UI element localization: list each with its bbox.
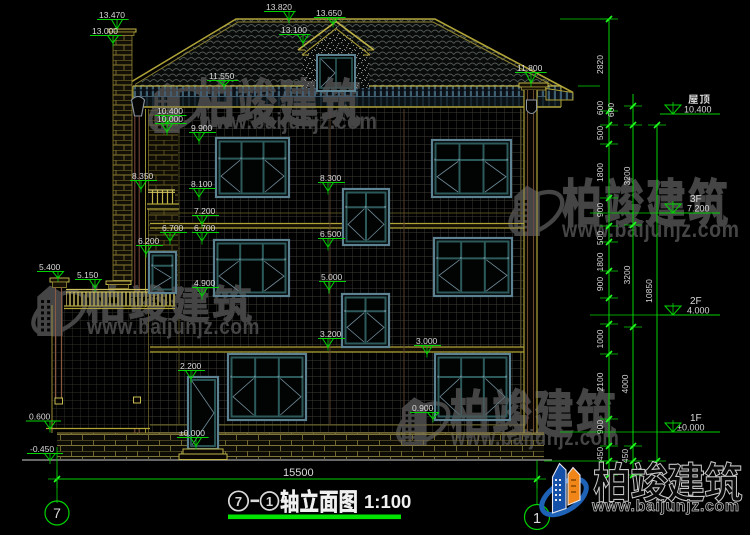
svg-text:900: 900 — [595, 203, 605, 217]
svg-text:13.470: 13.470 — [99, 10, 125, 20]
svg-text:6.700: 6.700 — [194, 223, 216, 233]
svg-text:8.300: 8.300 — [320, 173, 342, 183]
svg-text:10850: 10850 — [644, 279, 654, 303]
svg-text:www.baijunjz.com: www.baijunjz.com — [591, 498, 740, 515]
svg-text:www.baijunjz.com: www.baijunjz.com — [561, 217, 739, 243]
svg-text:2820: 2820 — [595, 55, 605, 74]
svg-text:www.baijunjz.com: www.baijunjz.com — [86, 315, 260, 340]
svg-text:10.000: 10.000 — [157, 114, 183, 124]
svg-text:4000: 4000 — [620, 374, 630, 393]
svg-text:-0.450: -0.450 — [30, 444, 54, 454]
svg-text:6.700: 6.700 — [162, 223, 184, 233]
svg-text:5.150: 5.150 — [77, 270, 99, 280]
svg-text:450: 450 — [595, 447, 605, 461]
svg-text:7: 7 — [235, 494, 242, 509]
svg-text:500: 500 — [595, 231, 605, 245]
svg-text:1800: 1800 — [595, 252, 605, 271]
svg-text:9.900: 9.900 — [191, 123, 213, 133]
svg-text:8.100: 8.100 — [191, 179, 213, 189]
svg-text:15500: 15500 — [283, 467, 314, 479]
svg-text:13.650: 13.650 — [316, 8, 342, 18]
svg-text:5.400: 5.400 — [39, 262, 61, 272]
svg-text:3200: 3200 — [622, 166, 632, 185]
svg-text:±0.000: ±0.000 — [179, 428, 205, 438]
svg-text:3.000: 3.000 — [416, 336, 438, 346]
svg-text:6.200: 6.200 — [138, 236, 160, 246]
svg-text:1: 1 — [533, 510, 541, 527]
svg-text:13.820: 13.820 — [266, 2, 292, 12]
svg-text:2.200: 2.200 — [180, 361, 202, 371]
svg-text:7.200: 7.200 — [194, 206, 216, 216]
svg-text:1800: 1800 — [595, 163, 605, 182]
svg-text:6.500: 6.500 — [320, 229, 342, 239]
svg-text:600: 600 — [606, 103, 616, 117]
svg-text:500: 500 — [595, 126, 605, 140]
svg-text:3.200: 3.200 — [320, 329, 342, 339]
svg-text:1000: 1000 — [595, 329, 605, 348]
svg-text:1: 1 — [266, 494, 273, 509]
svg-text:7.200: 7.200 — [687, 204, 710, 214]
svg-text:2100: 2100 — [595, 372, 605, 391]
svg-text:4.900: 4.900 — [194, 278, 216, 288]
svg-text:7: 7 — [53, 505, 61, 521]
svg-text:0.600: 0.600 — [29, 412, 51, 422]
svg-text:3200: 3200 — [622, 265, 632, 284]
svg-text:1:100: 1:100 — [364, 491, 411, 512]
svg-text:±0.000: ±0.000 — [677, 423, 704, 433]
svg-text:www.baijunjz.com: www.baijunjz.com — [199, 109, 377, 135]
svg-text:13.000: 13.000 — [92, 26, 118, 36]
svg-text:8.350: 8.350 — [132, 171, 154, 181]
svg-text:10.400: 10.400 — [684, 105, 712, 115]
svg-text:600: 600 — [595, 101, 605, 115]
svg-text:900: 900 — [595, 277, 605, 291]
svg-text:13.100: 13.100 — [281, 25, 307, 35]
svg-text:11.800: 11.800 — [517, 63, 543, 73]
svg-text:4.000: 4.000 — [687, 306, 710, 316]
svg-text:0.900: 0.900 — [412, 403, 434, 413]
svg-text:450: 450 — [620, 449, 630, 463]
svg-text:11.550: 11.550 — [209, 71, 235, 81]
svg-text:5.000: 5.000 — [321, 272, 343, 282]
